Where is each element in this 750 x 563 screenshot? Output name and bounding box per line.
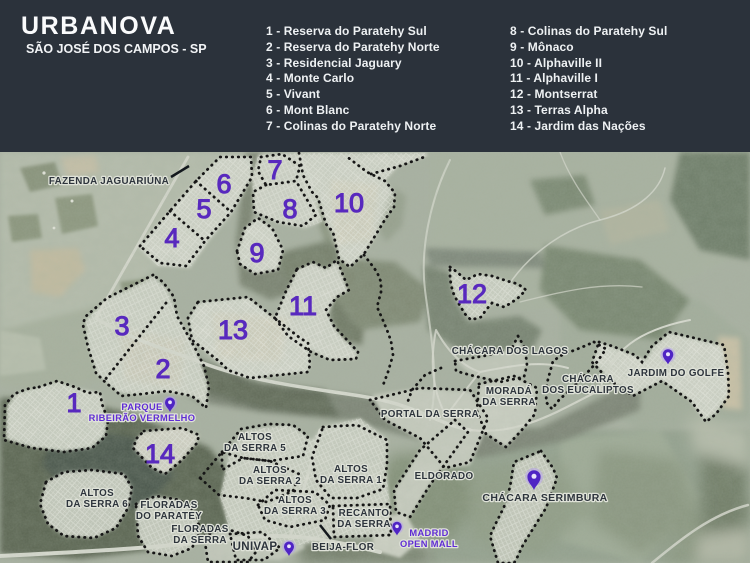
svg-text:FLORADASDA SERRA: FLORADASDA SERRA	[171, 524, 228, 546]
svg-text:5: 5	[196, 194, 211, 224]
svg-text:RECANTODA SERRA: RECANTODA SERRA	[337, 508, 391, 530]
svg-text:JARDIM DO GOLFE: JARDIM DO GOLFE	[628, 368, 725, 379]
svg-text:FLORADASDO PARATEY: FLORADASDO PARATEY	[136, 500, 202, 522]
svg-text:14: 14	[145, 439, 175, 469]
svg-text:MORADÁDA SERRA: MORADÁDA SERRA	[482, 385, 536, 408]
svg-text:9: 9	[249, 238, 264, 268]
svg-text:7: 7	[267, 155, 282, 185]
svg-text:ELDORADO: ELDORADO	[415, 471, 474, 482]
svg-text:12: 12	[457, 279, 487, 309]
svg-text:8: 8	[282, 194, 297, 224]
svg-text:13: 13	[218, 315, 248, 345]
svg-text:CHÁCARA SERIMBURA: CHÁCARA SERIMBURA	[482, 491, 607, 504]
svg-text:1: 1	[66, 388, 81, 418]
svg-text:4: 4	[164, 223, 179, 253]
svg-text:UNIVAP: UNIVAP	[233, 541, 278, 553]
svg-text:2: 2	[155, 354, 170, 384]
svg-text:11: 11	[289, 291, 317, 321]
svg-text:PORTAL DA SERRA: PORTAL DA SERRA	[381, 409, 479, 420]
svg-text:3: 3	[114, 311, 129, 341]
svg-text:FAZENDA JAGUARIÚNA: FAZENDA JAGUARIÚNA	[49, 175, 169, 187]
svg-text:6: 6	[216, 169, 231, 199]
svg-text:BEIJA-FLOR: BEIJA-FLOR	[312, 542, 374, 553]
svg-text:CHÁCARA DOS LAGOS: CHÁCARA DOS LAGOS	[452, 345, 569, 357]
svg-text:10: 10	[334, 188, 364, 218]
